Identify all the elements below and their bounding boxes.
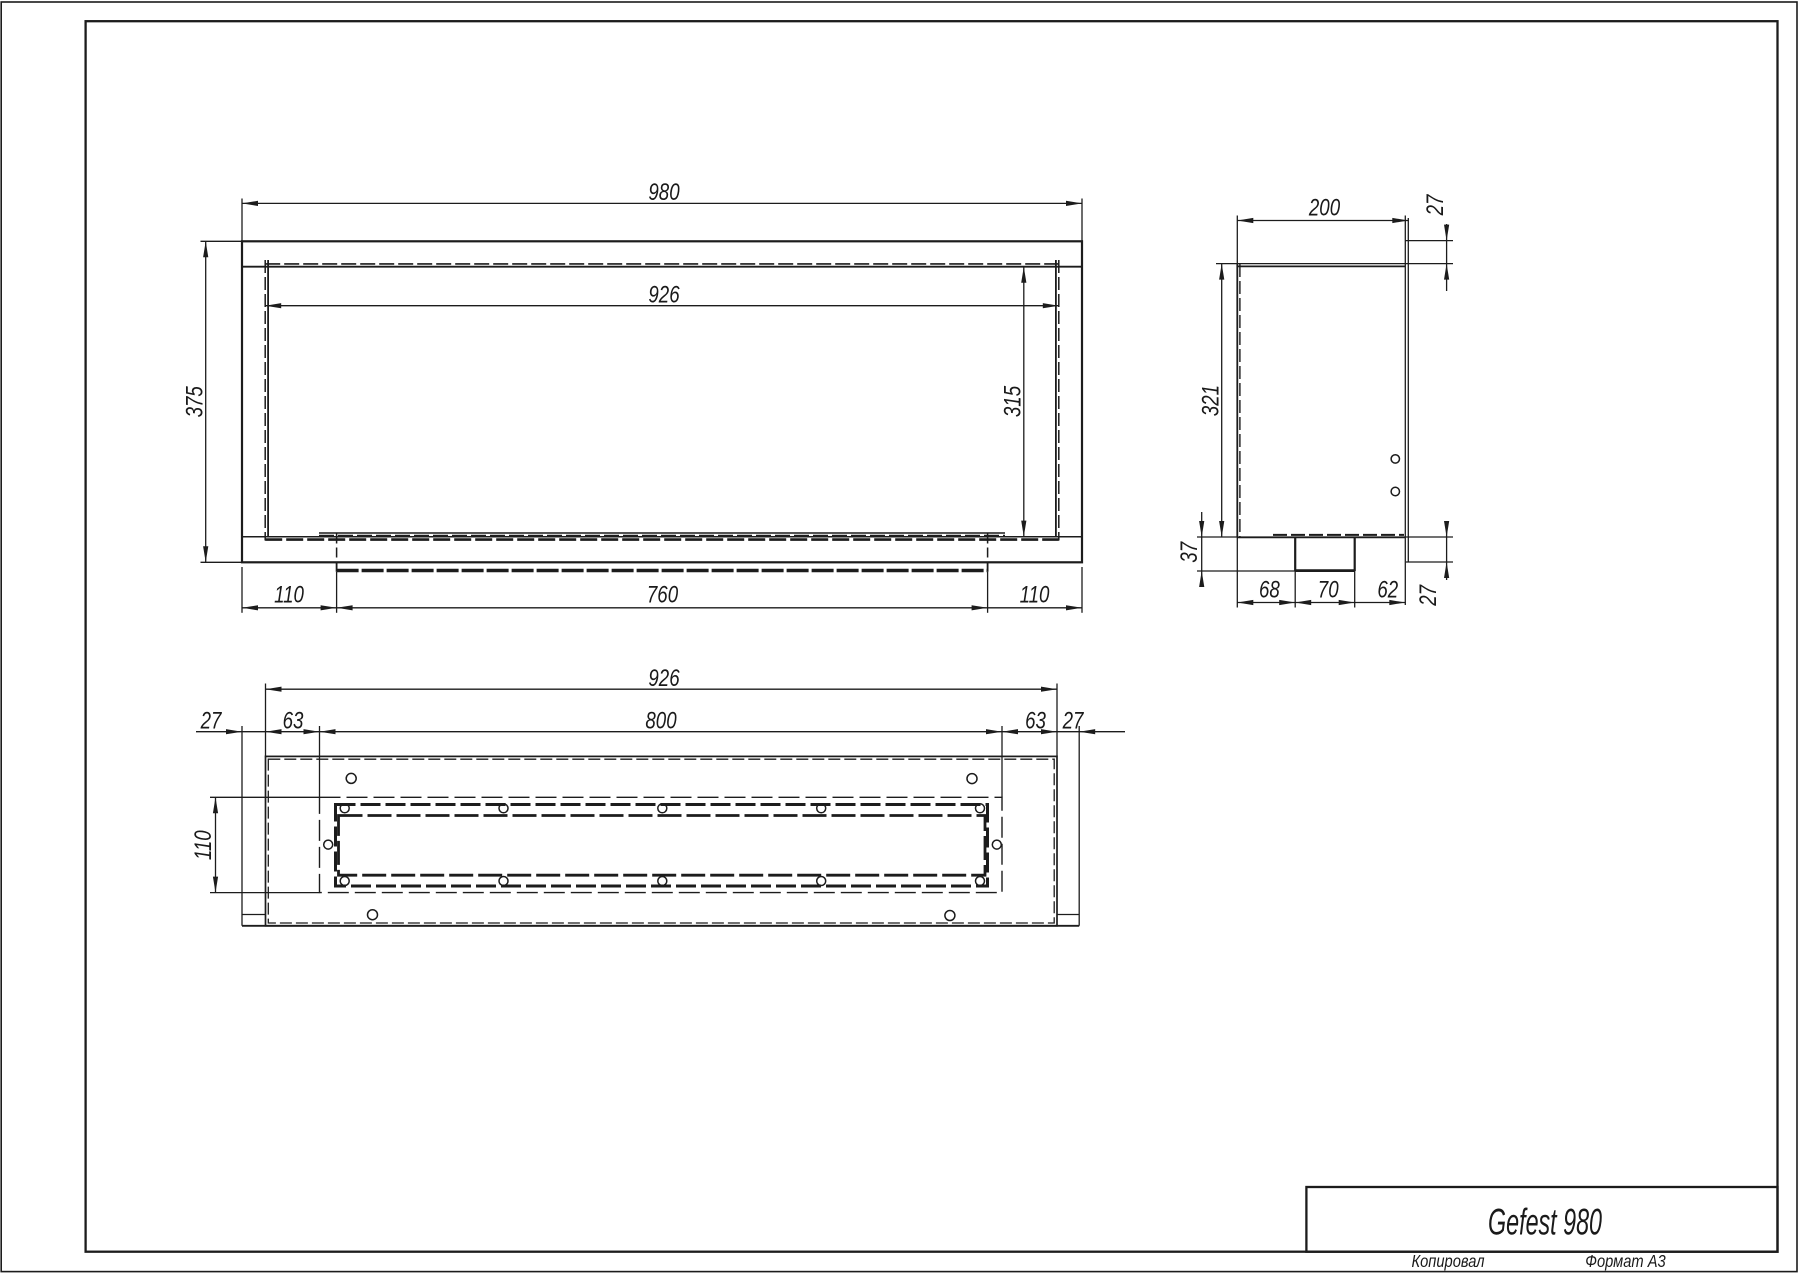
svg-text:62: 62	[1377, 576, 1398, 603]
svg-text:110: 110	[190, 830, 217, 860]
svg-text:200: 200	[1308, 194, 1340, 221]
svg-text:27: 27	[1062, 707, 1085, 734]
svg-text:68: 68	[1259, 576, 1280, 603]
svg-text:37: 37	[1176, 541, 1203, 563]
svg-text:63: 63	[283, 707, 304, 734]
svg-text:980: 980	[648, 179, 679, 206]
svg-text:27: 27	[1415, 584, 1442, 607]
svg-text:Gefest 980: Gefest 980	[1488, 1201, 1602, 1243]
svg-text:63: 63	[1025, 707, 1046, 734]
svg-text:321: 321	[1198, 385, 1225, 416]
svg-text:926: 926	[648, 281, 679, 308]
svg-text:375: 375	[181, 385, 208, 417]
svg-text:27: 27	[1422, 194, 1449, 217]
svg-text:Копировал: Копировал	[1411, 1252, 1484, 1271]
svg-text:27: 27	[200, 707, 223, 734]
svg-text:760: 760	[647, 581, 678, 608]
svg-text:Формат А3: Формат А3	[1585, 1252, 1665, 1271]
svg-text:926: 926	[648, 665, 679, 692]
svg-text:800: 800	[645, 707, 676, 734]
svg-text:315: 315	[999, 385, 1026, 417]
svg-text:110: 110	[274, 581, 304, 608]
svg-text:70: 70	[1318, 576, 1339, 603]
svg-text:110: 110	[1020, 581, 1050, 608]
